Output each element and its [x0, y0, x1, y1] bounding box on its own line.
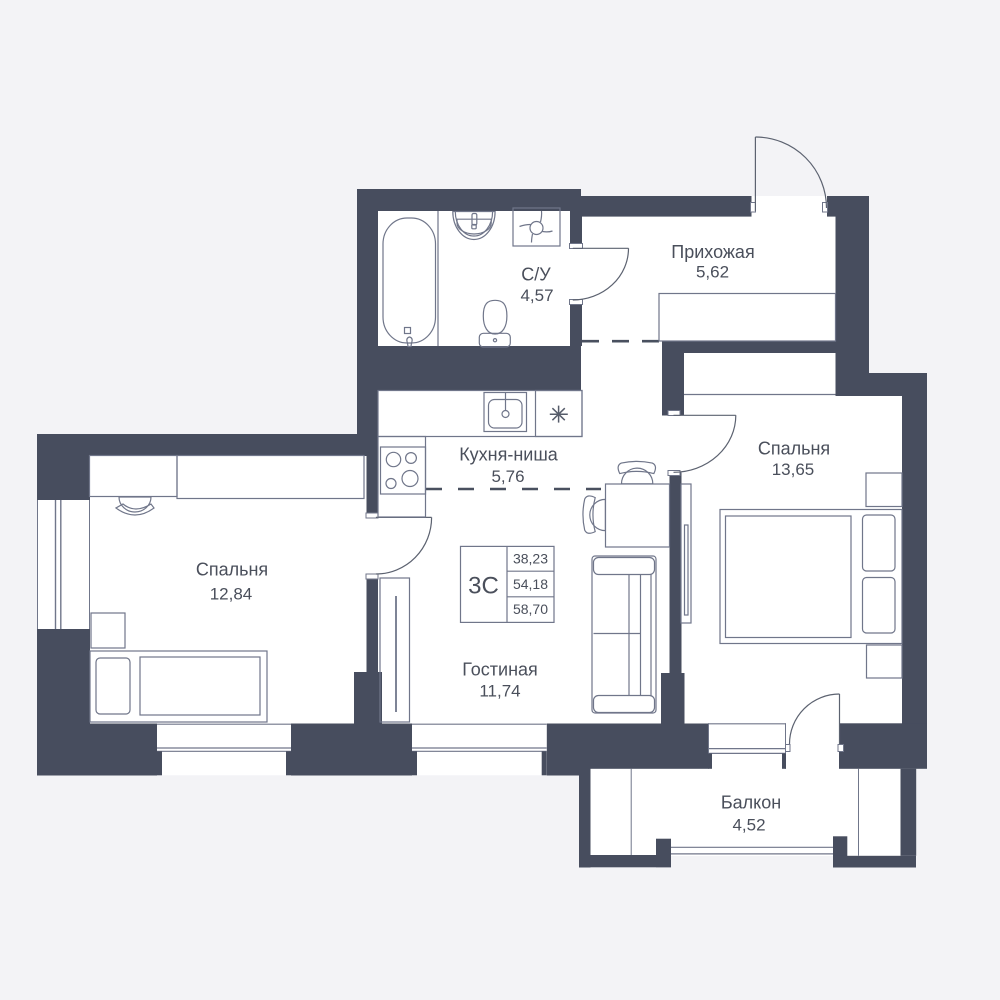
- svg-text:4,57: 4,57: [520, 286, 553, 305]
- svg-text:11,74: 11,74: [479, 682, 520, 701]
- svg-text:38,23: 38,23: [513, 550, 548, 566]
- svg-text:58,70: 58,70: [513, 601, 548, 617]
- svg-text:3С: 3С: [468, 573, 499, 600]
- svg-text:13,65: 13,65: [772, 460, 815, 479]
- svg-text:5,76: 5,76: [491, 467, 524, 486]
- svg-text:5,62: 5,62: [696, 263, 729, 282]
- svg-text:Спальня: Спальня: [196, 560, 268, 580]
- svg-text:Балкон: Балкон: [721, 793, 781, 813]
- svg-text:Прихожая: Прихожая: [671, 242, 754, 262]
- svg-text:Кухня-ниша: Кухня-ниша: [459, 445, 559, 465]
- svg-text:Гостиная: Гостиная: [462, 660, 538, 680]
- svg-text:С/У: С/У: [521, 265, 551, 285]
- svg-text:4,52: 4,52: [732, 816, 765, 835]
- svg-text:Спальня: Спальня: [758, 439, 830, 459]
- svg-text:54,18: 54,18: [513, 576, 548, 592]
- svg-text:12,84: 12,84: [210, 585, 253, 604]
